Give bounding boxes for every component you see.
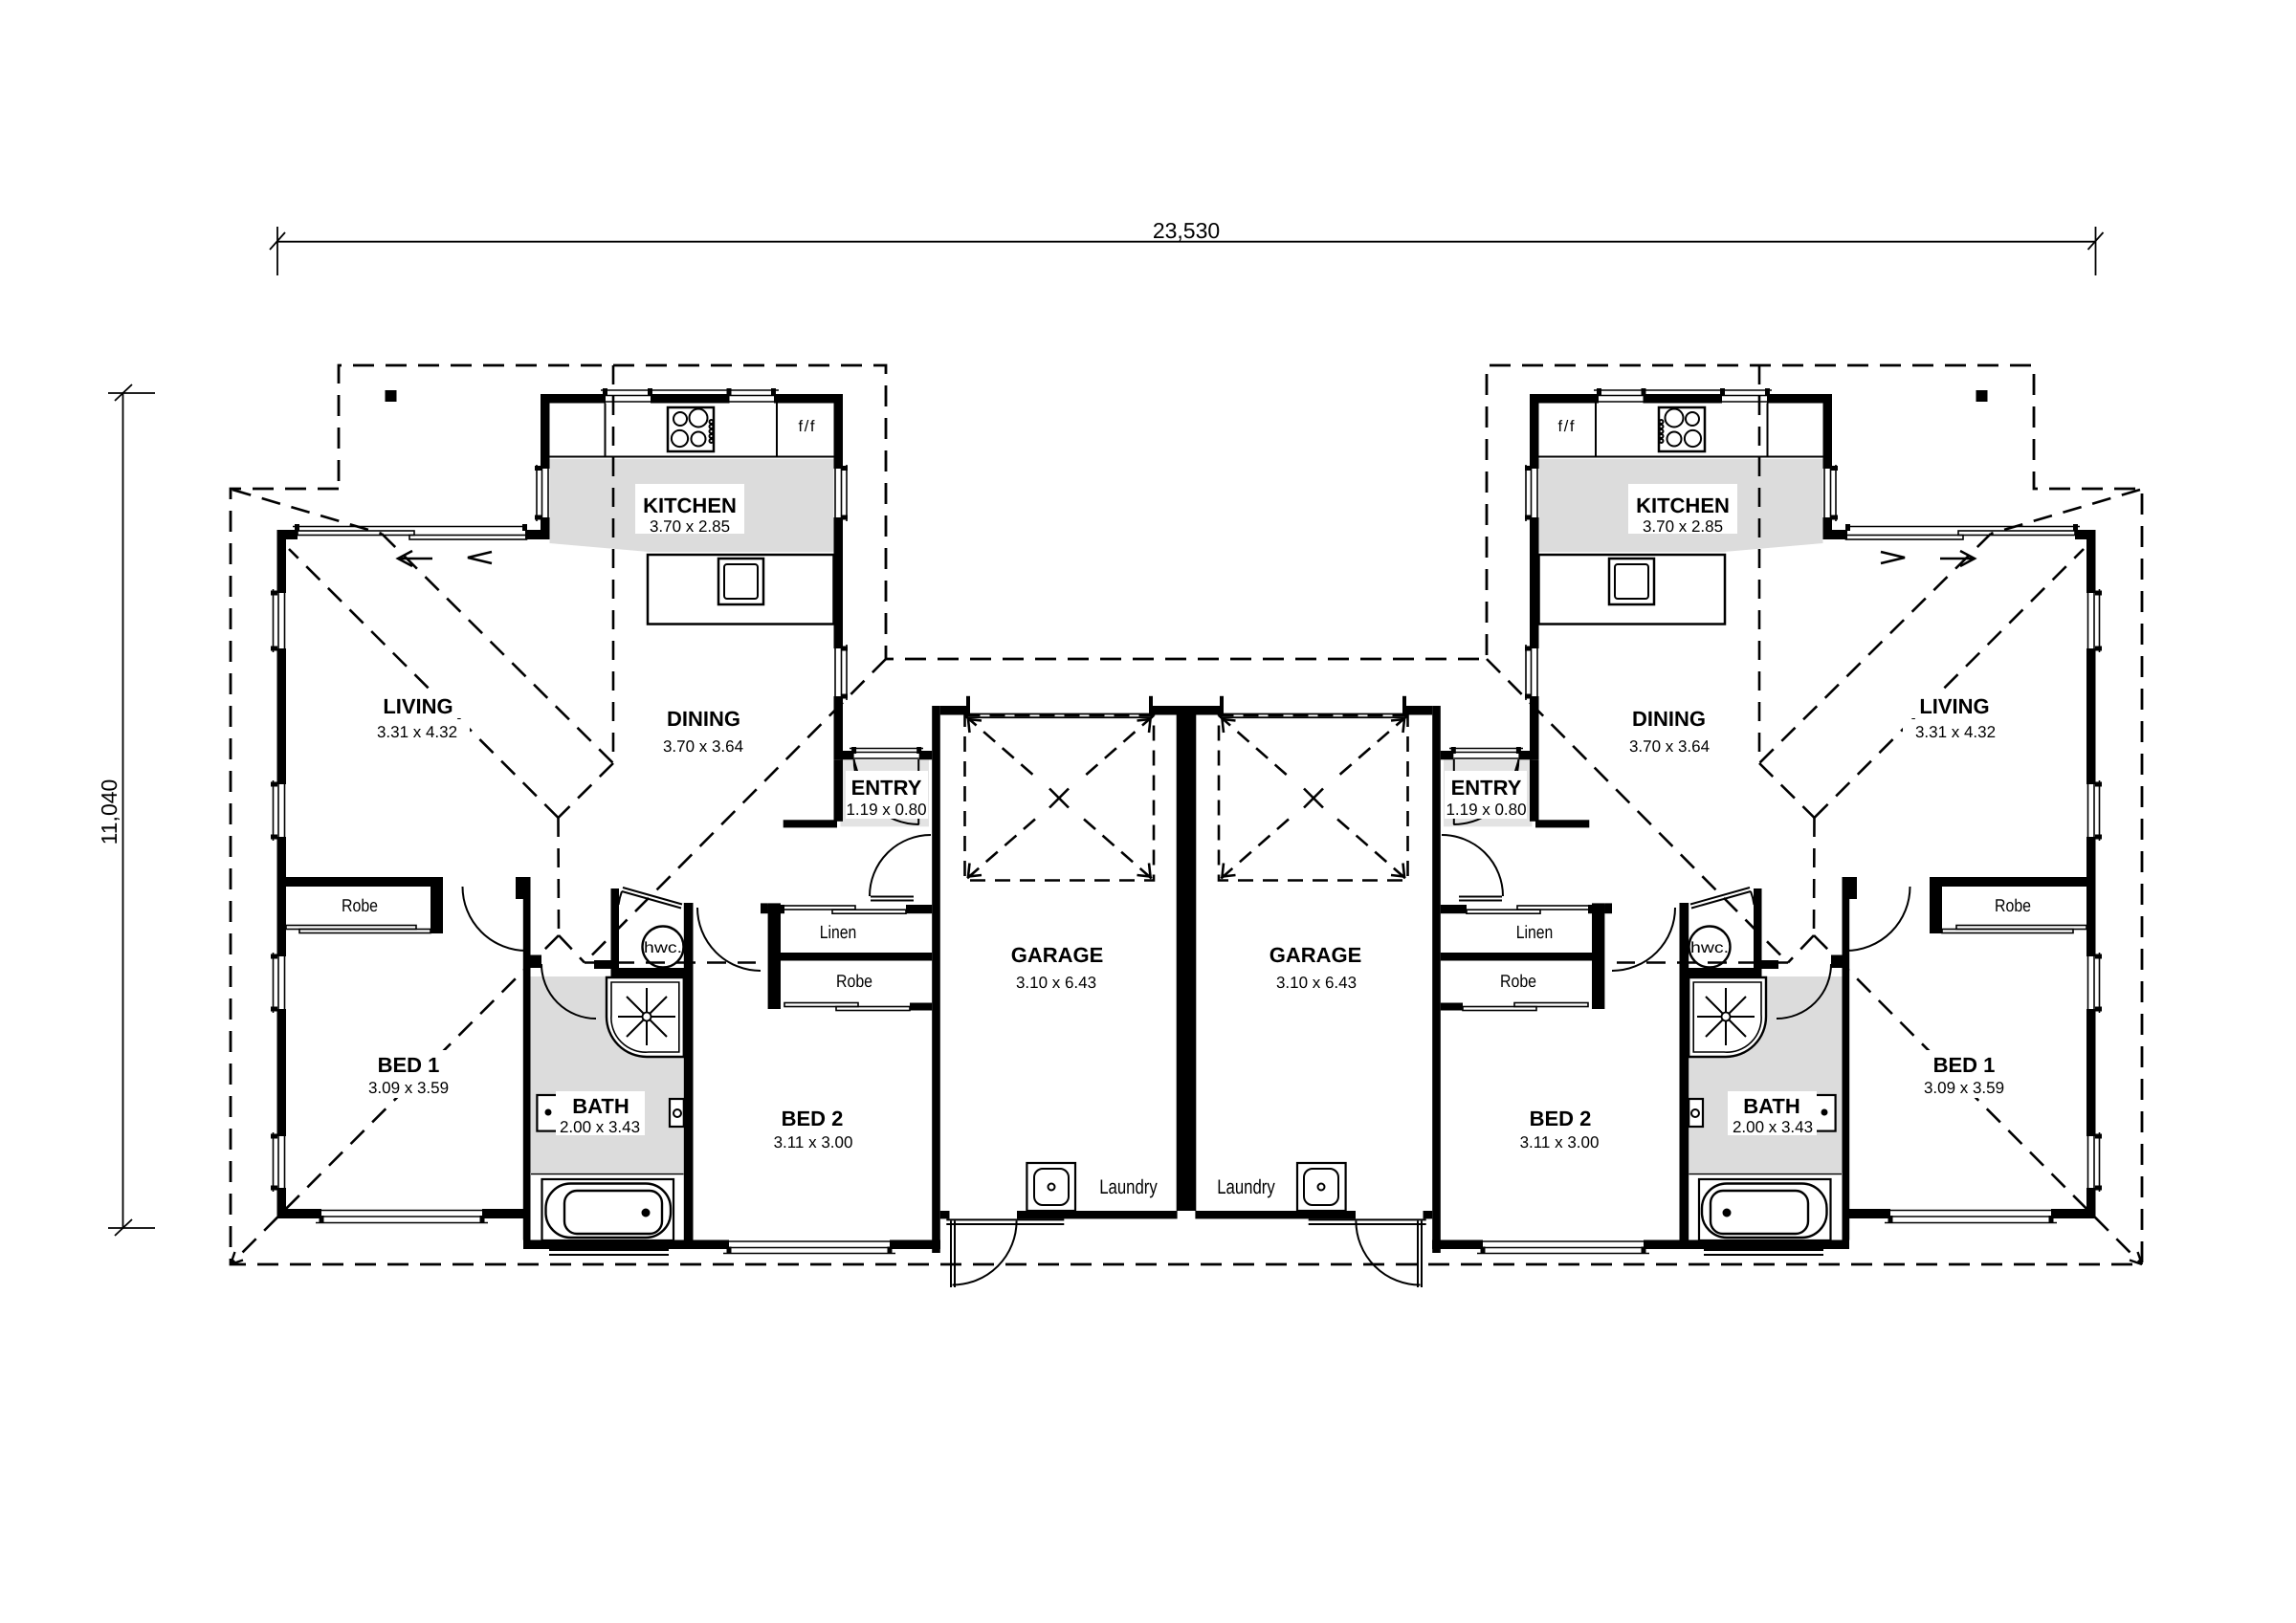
svg-text:LIVING: LIVING <box>383 694 453 718</box>
svg-text:23,530: 23,530 <box>1153 218 1220 243</box>
svg-text:11,040: 11,040 <box>97 779 121 845</box>
svg-text:GARAGE: GARAGE <box>1011 943 1104 967</box>
svg-text:hwc.: hwc. <box>1690 940 1729 956</box>
svg-text:DINING: DINING <box>667 707 740 731</box>
svg-text:LIVING: LIVING <box>1919 694 1989 718</box>
svg-text:1.19 x 0.80: 1.19 x 0.80 <box>1446 801 1526 819</box>
svg-text:3.70 x 3.64: 3.70 x 3.64 <box>1629 737 1710 756</box>
svg-text:Robe: Robe <box>342 895 378 915</box>
svg-text:BATH: BATH <box>1743 1094 1799 1118</box>
svg-text:3.09 x 3.59: 3.09 x 3.59 <box>368 1079 449 1097</box>
svg-text:3.10 x 6.43: 3.10 x 6.43 <box>1276 974 1357 992</box>
svg-text:3.70 x 2.85: 3.70 x 2.85 <box>1643 517 1723 536</box>
svg-text:BED 1: BED 1 <box>378 1053 440 1077</box>
svg-text:Robe: Robe <box>836 971 872 991</box>
svg-text:Laundry: Laundry <box>1099 1176 1158 1198</box>
svg-text:KITCHEN: KITCHEN <box>1636 493 1730 517</box>
svg-text:Robe: Robe <box>1500 971 1536 991</box>
svg-text:3.09 x 3.59: 3.09 x 3.59 <box>1924 1079 2004 1097</box>
svg-text:ENTRY: ENTRY <box>1451 776 1522 800</box>
svg-text:hwc.: hwc. <box>644 940 682 956</box>
svg-text:BED 2: BED 2 <box>782 1107 844 1130</box>
svg-text:DINING: DINING <box>1632 707 1706 731</box>
svg-text:Linen: Linen <box>1516 923 1554 943</box>
svg-text:3.11 x 3.00: 3.11 x 3.00 <box>1520 1133 1600 1151</box>
svg-text:3.31 x 4.32: 3.31 x 4.32 <box>377 723 457 741</box>
svg-text:BATH: BATH <box>572 1094 629 1118</box>
svg-text:KITCHEN: KITCHEN <box>643 493 737 517</box>
svg-text:BED 2: BED 2 <box>1530 1107 1592 1130</box>
svg-text:2.00 x 3.43: 2.00 x 3.43 <box>1733 1118 1813 1136</box>
svg-text:f/f: f/f <box>1558 418 1575 435</box>
svg-text:GARAGE: GARAGE <box>1269 943 1362 967</box>
svg-text:3.70 x 3.64: 3.70 x 3.64 <box>663 737 743 756</box>
svg-text:f/f: f/f <box>799 418 815 435</box>
svg-text:BED 1: BED 1 <box>1933 1053 1996 1077</box>
svg-text:Laundry: Laundry <box>1217 1176 1275 1198</box>
svg-text:1.19 x 0.80: 1.19 x 0.80 <box>846 801 926 819</box>
svg-text:3.10 x 6.43: 3.10 x 6.43 <box>1016 974 1096 992</box>
svg-text:Robe: Robe <box>1995 895 2031 915</box>
svg-text:3.11 x 3.00: 3.11 x 3.00 <box>774 1133 853 1151</box>
svg-text:ENTRY: ENTRY <box>851 776 922 800</box>
svg-text:3.31 x 4.32: 3.31 x 4.32 <box>1915 723 1996 741</box>
svg-text:3.70 x 2.85: 3.70 x 2.85 <box>650 517 730 536</box>
svg-text:Linen: Linen <box>820 923 857 943</box>
svg-text:2.00 x 3.43: 2.00 x 3.43 <box>560 1118 640 1136</box>
